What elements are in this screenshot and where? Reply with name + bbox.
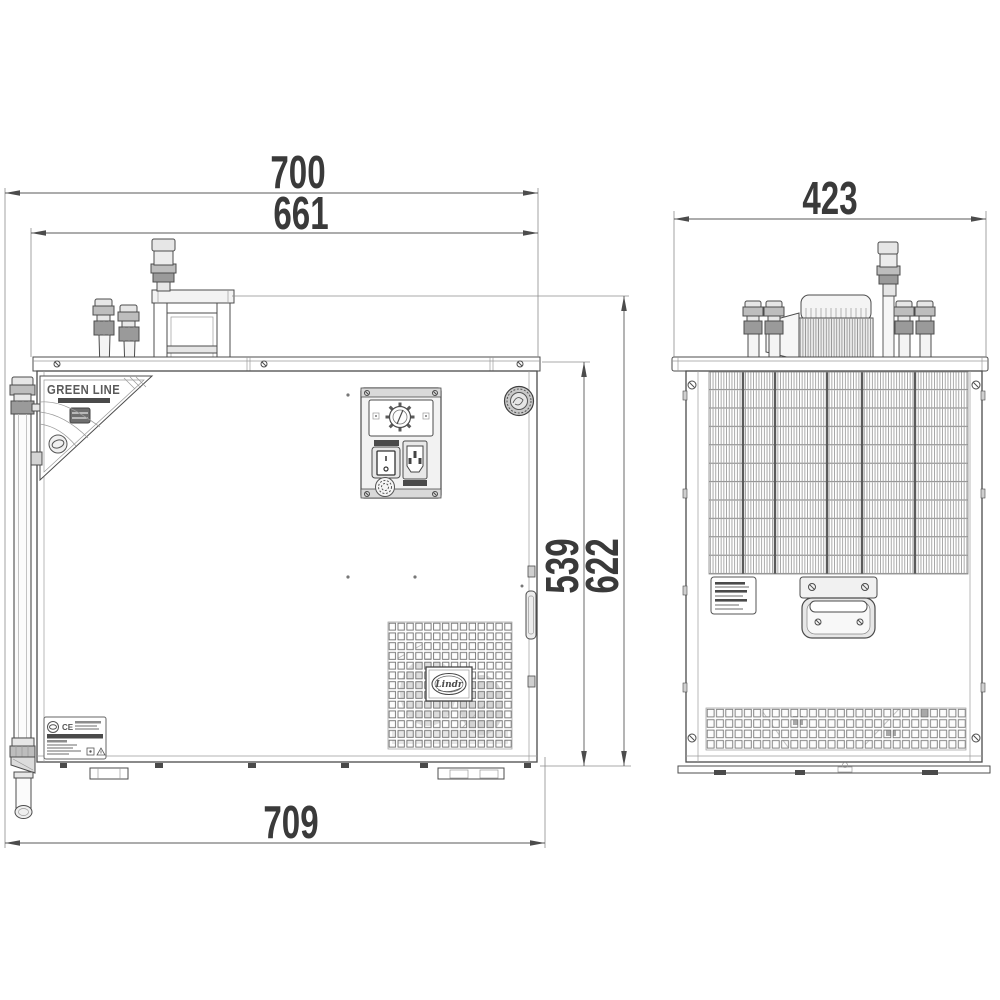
louvre-grille bbox=[709, 372, 968, 574]
power-switch[interactable] bbox=[372, 447, 400, 478]
front-top-plate bbox=[33, 357, 540, 371]
corner-screw bbox=[972, 734, 980, 742]
warning-label bbox=[711, 577, 756, 614]
side-fitting bbox=[743, 301, 763, 358]
sticker-logo bbox=[49, 435, 67, 453]
dim-label-622: 622 bbox=[578, 538, 628, 593]
rivet bbox=[346, 393, 349, 396]
dim-label-709: 709 bbox=[263, 798, 318, 848]
ce-mark: CE bbox=[62, 723, 74, 732]
corner-screw bbox=[688, 734, 696, 742]
sticker-title: GREEN LINE bbox=[47, 382, 120, 397]
tall-fitting-front bbox=[151, 239, 176, 291]
tall-fitting-side bbox=[877, 242, 900, 357]
switch-label-bar bbox=[374, 440, 399, 446]
grille-logo-plate: Lindr bbox=[426, 667, 472, 701]
green-line-sticker: GREEN LINE bbox=[40, 376, 152, 480]
control-panel bbox=[361, 388, 441, 498]
front-feet bbox=[60, 763, 531, 779]
thermostat-knob[interactable] bbox=[386, 403, 415, 432]
bottom-grille-strip bbox=[706, 708, 966, 750]
dim-661: 661 bbox=[31, 189, 538, 239]
side-view bbox=[672, 242, 990, 775]
front-view: GREEN LINE bbox=[10, 239, 540, 819]
side-top-plate bbox=[672, 357, 988, 371]
dim-700: 700 bbox=[5, 148, 538, 198]
corner-screw bbox=[972, 381, 980, 389]
rivet bbox=[346, 575, 349, 578]
rivet bbox=[521, 585, 524, 588]
dim-709: 709 bbox=[5, 798, 545, 848]
inlet-label-bar bbox=[403, 480, 427, 486]
tube-clamp bbox=[31, 452, 42, 465]
side-feet bbox=[678, 763, 990, 776]
side-fitting bbox=[894, 301, 914, 358]
dim-label-423: 423 bbox=[802, 174, 857, 224]
dim-label-661: 661 bbox=[273, 189, 328, 239]
power-inlet[interactable] bbox=[403, 441, 427, 479]
sticker-subtitle-bar bbox=[58, 398, 110, 403]
rivet bbox=[413, 575, 416, 578]
handle[interactable] bbox=[800, 577, 877, 638]
pump-block bbox=[799, 295, 873, 360]
corner-screw bbox=[688, 381, 696, 389]
tube-end bbox=[14, 772, 33, 819]
dim-622: 622 bbox=[578, 296, 628, 766]
edge-bracket bbox=[521, 566, 537, 687]
technical-drawing: GREEN LINE bbox=[0, 0, 1000, 1000]
rating-plate: CE bbox=[44, 717, 106, 759]
tube-top-fitting bbox=[10, 377, 40, 414]
tube-bottom-fitting bbox=[10, 738, 35, 773]
tube-body bbox=[14, 414, 31, 738]
sticker-badge bbox=[70, 408, 90, 423]
side-fitting bbox=[915, 301, 935, 358]
vent-grommet bbox=[376, 478, 395, 497]
brand-badge bbox=[505, 387, 534, 416]
front-grille: Lindr bbox=[388, 622, 512, 749]
dim-423: 423 bbox=[674, 174, 986, 224]
